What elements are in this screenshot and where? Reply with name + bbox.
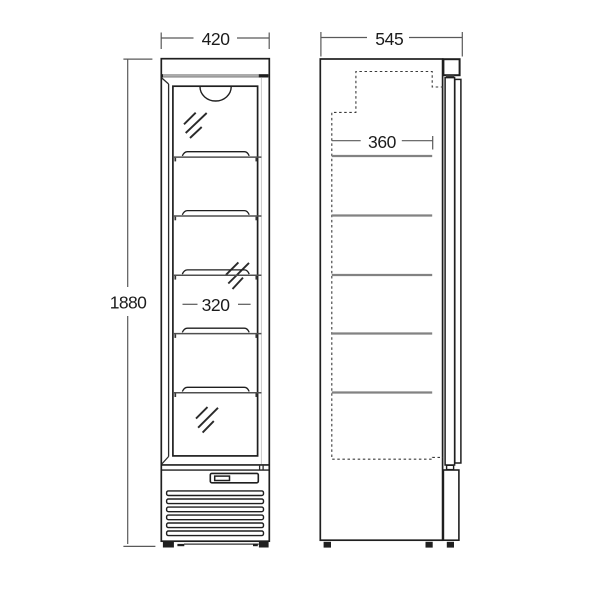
svg-text:360: 360 [368,132,397,152]
svg-text:320: 320 [202,295,231,315]
svg-text:420: 420 [202,29,231,49]
svg-text:1880: 1880 [110,293,147,313]
svg-text:545: 545 [375,29,403,49]
